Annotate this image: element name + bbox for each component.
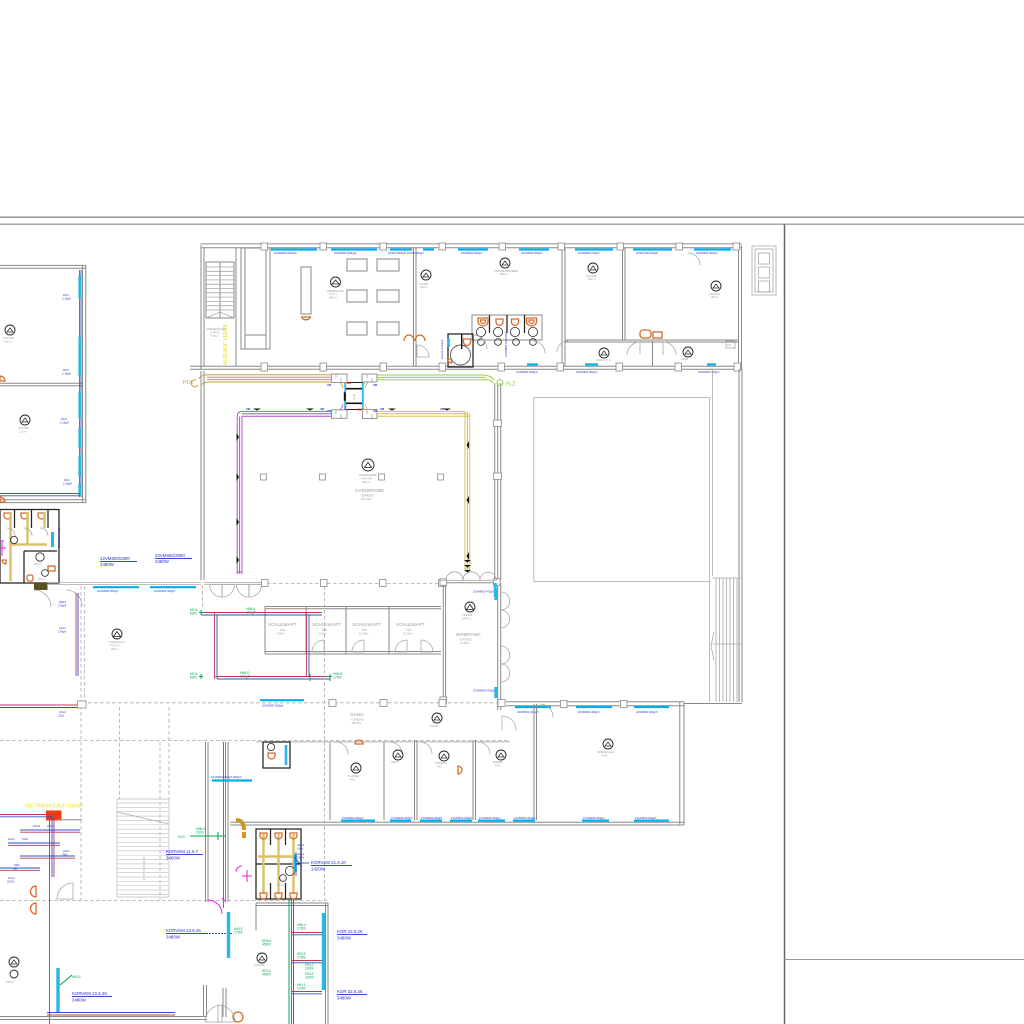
svg-text:3480W: 3480W xyxy=(337,936,352,941)
svg-text:3480W: 3480W xyxy=(155,559,170,564)
svg-text:DKU: DKU xyxy=(63,293,69,297)
svg-text:809 m: 809 m xyxy=(500,272,508,276)
svg-text:HKL1: HKL1 xyxy=(59,626,66,630)
svg-text:22/VM600-300g/h 300g/h: 22/VM600-300g/h 300g/h xyxy=(211,775,242,779)
svg-text:20 ST 17.65/30.00: 20 ST 17.65/30.00 xyxy=(142,857,146,880)
svg-text:21.65m: 21.65m xyxy=(460,641,470,645)
svg-text:P11: P11 xyxy=(437,764,442,768)
svg-text:21/VM600-300g/h: 21/VM600-300g/h xyxy=(421,816,443,820)
svg-text:KLASSE: KLASSE xyxy=(254,963,265,967)
svg-text:22/VM600-400g/h: 22/VM600-400g/h xyxy=(696,251,718,255)
svg-text:176%: 176% xyxy=(297,926,306,930)
svg-text:202 m: 202 m xyxy=(588,277,596,281)
svg-text:DKU: DKU xyxy=(64,478,70,482)
svg-text:3480W: 3480W xyxy=(337,996,352,1001)
svg-text:HKL5: HKL5 xyxy=(72,975,81,979)
svg-text:456%: 456% xyxy=(262,972,271,976)
svg-text:103 m: 103 m xyxy=(420,285,428,289)
svg-text:190d: 190d xyxy=(297,846,303,850)
svg-text:SRA: SRA xyxy=(14,863,20,867)
svg-text:21/VM600-300g/h: 21/VM600-300g/h xyxy=(342,816,364,820)
svg-text:22/VM600-300g/h: 22/VM600-300g/h xyxy=(521,251,543,255)
svg-text:HKL1: HKL1 xyxy=(8,837,15,841)
svg-text:3480W: 3480W xyxy=(72,998,87,1003)
svg-text:GANG 77 m: GANG 77 m xyxy=(596,358,612,362)
svg-text:22161: 22161 xyxy=(7,879,15,883)
svg-text:22VM600/2800: 22VM600/2800 xyxy=(155,553,185,558)
svg-text:22/VM600 300kg/h: 22/VM600 300kg/h xyxy=(334,251,357,255)
svg-text:FLZ: FLZ xyxy=(506,382,516,388)
svg-text:HML4: HML4 xyxy=(297,852,305,856)
svg-text:KORVKM 22.6.26: KORVKM 22.6.26 xyxy=(166,928,201,933)
svg-text:21/VM600-300g/h: 21/VM600-300g/h xyxy=(451,816,473,820)
svg-text:2.16g/h: 2.16g/h xyxy=(62,296,71,300)
svg-text:78%: 78% xyxy=(62,852,68,856)
svg-text:22/VM600-470g/h: 22/VM600-470g/h xyxy=(473,689,495,693)
svg-text:P10: P10 xyxy=(350,777,355,781)
svg-text:AUSLAUF VENTIL: AUSLAUF VENTIL xyxy=(223,323,229,365)
svg-text:HML4: HML4 xyxy=(297,843,305,847)
svg-text:21/VM600-300g/h: 21/VM600-300g/h xyxy=(479,816,501,820)
svg-text:456%: 456% xyxy=(262,942,271,946)
svg-text:WC H: WC H xyxy=(38,577,45,581)
svg-text:WINDFANG: WINDFANG xyxy=(456,632,481,637)
svg-text:22/VM600-470g/h: 22/VM600-470g/h xyxy=(578,251,600,255)
svg-text:22/VM600-300g/h: 22/VM600-300g/h xyxy=(576,370,598,374)
svg-text:10.30m: 10.30m xyxy=(359,632,369,636)
svg-text:22/VM600 300g/h: 22/VM600 300g/h xyxy=(154,589,176,593)
svg-text:WC D: WC D xyxy=(34,562,41,566)
svg-text:190g/h: 190g/h xyxy=(246,611,256,615)
svg-text:22/VM600-400g/h: 22/VM600-400g/h xyxy=(517,710,539,714)
svg-text:22/VM600 300kg/h: 22/VM600 300kg/h xyxy=(274,251,297,255)
svg-text:P14: P14 xyxy=(602,753,607,757)
svg-text:WC03: WC03 xyxy=(6,980,14,984)
svg-text:ARZT: ARZT xyxy=(391,760,399,764)
svg-text:2.16g/h: 2.16g/h xyxy=(63,481,72,485)
svg-text:SCHULWART: SCHULWART xyxy=(268,622,297,627)
svg-text:176%: 176% xyxy=(297,986,306,990)
svg-text:225.43m: 225.43m xyxy=(361,497,373,501)
svg-text:38.14m: 38.14m xyxy=(352,721,362,725)
svg-text:176g/h: 176g/h xyxy=(58,603,67,607)
svg-text:22/VM600-400g/h: 22/VM600-400g/h xyxy=(578,710,600,714)
svg-text:KORVKM 22.6.26: KORVKM 22.6.26 xyxy=(72,991,107,996)
svg-text:176%: 176% xyxy=(234,930,243,934)
svg-text:SCHULWART: SCHULWART xyxy=(312,622,341,627)
svg-text:202 m: 202 m xyxy=(362,480,370,484)
svg-text:SCHULWART: SCHULWART xyxy=(352,622,381,627)
svg-text:22/VM600-400g/h: 22/VM600-400g/h xyxy=(636,710,658,714)
svg-text:Ban: Ban xyxy=(13,866,18,870)
svg-text:22/VM600 300g/h: 22/VM600 300g/h xyxy=(57,526,61,548)
svg-text:668 m: 668 m xyxy=(329,295,337,299)
svg-text:22/VM600-300g/h: 22/VM600-300g/h xyxy=(516,370,538,374)
svg-text:HKL2: HKL2 xyxy=(59,710,66,714)
svg-text:HML5: HML5 xyxy=(59,600,67,604)
svg-text:+2.28: +2.28 xyxy=(352,393,356,401)
svg-text:58%: 58% xyxy=(190,676,197,680)
svg-text:2161: 2161 xyxy=(22,837,28,841)
svg-text:202 m: 202 m xyxy=(111,647,119,651)
svg-text:176%: 176% xyxy=(333,676,342,680)
svg-text:22/VM 600-400g/h: 22/VM 600-400g/h xyxy=(636,251,659,255)
svg-text:176%: 176% xyxy=(297,955,306,959)
svg-text:22VM600/2800: 22VM600/2800 xyxy=(100,556,130,561)
svg-text:21/VM600-300g/h: 21/VM600-300g/h xyxy=(583,816,605,820)
svg-text:2.16g/h: 2.16g/h xyxy=(60,420,69,424)
svg-text:PH: PH xyxy=(727,343,731,347)
svg-text:HKL1: HKL1 xyxy=(8,876,15,880)
svg-text:190%: 190% xyxy=(297,855,304,859)
svg-text:2.16g/h: 2.16g/h xyxy=(62,371,71,375)
svg-text:KOR 22.6.26: KOR 22.6.26 xyxy=(337,989,363,994)
svg-text:22/VM600 22/VM300: 22/VM600 22/VM300 xyxy=(504,331,508,357)
svg-text:WC K: WC K xyxy=(277,883,284,887)
svg-text:P12: P12 xyxy=(495,763,500,767)
svg-text:190g/h: 190g/h xyxy=(240,675,250,679)
svg-text:22161: 22161 xyxy=(47,824,55,828)
svg-text:301 m: 301 m xyxy=(711,295,719,299)
svg-text:SCHULWART: SCHULWART xyxy=(396,622,425,627)
svg-text:KORVKM 11.6.7: KORVKM 11.6.7 xyxy=(166,849,199,854)
svg-text:VLN: VLN xyxy=(178,835,185,839)
svg-text:22/VM600-470g/h: 22/VM600-470g/h xyxy=(473,590,495,594)
svg-text:22/VM600 300g/h: 22/VM600 300g/h xyxy=(262,704,284,708)
svg-text:POL: POL xyxy=(183,380,194,386)
svg-text:22/VM600-300g/h: 22/VM600-300g/h xyxy=(698,370,720,374)
svg-text:GANG: GANG xyxy=(350,712,364,717)
svg-text:190%: 190% xyxy=(305,975,314,979)
svg-text:9.09m: 9.09m xyxy=(319,632,327,636)
svg-text:108 m: 108 m xyxy=(4,339,12,343)
svg-text:22/VM600-300g/h: 22/VM600-300g/h xyxy=(461,251,483,255)
svg-text:110 m: 110 m xyxy=(19,429,27,433)
svg-text:GARDEROBE: GARDEROBE xyxy=(355,488,384,493)
svg-text:GETRÄNKEAUTOMAT: GETRÄNKEAUTOMAT xyxy=(25,803,84,810)
svg-text:DKU1: DKU1 xyxy=(33,824,41,828)
svg-text:KOR 22.6.26: KOR 22.6.26 xyxy=(337,929,363,934)
svg-text:22/VM 300kg/h 22/VM-300g/h: 22/VM 300kg/h 22/VM-300g/h xyxy=(388,251,424,255)
svg-text:21/VM600-300g/h: 21/VM600-300g/h xyxy=(391,816,413,820)
svg-text:2161: 2161 xyxy=(58,713,64,717)
svg-text:GANG: GANG xyxy=(430,724,438,728)
svg-text:DKU: DKU xyxy=(63,368,69,372)
svg-text:DKU: DKU xyxy=(61,417,67,421)
svg-text:HKL1: HKL1 xyxy=(63,849,70,853)
svg-text:FLUR: FLUR xyxy=(681,357,688,361)
svg-text:KORVKM 21.9.10: KORVKM 21.9.10 xyxy=(311,860,346,865)
svg-text:7.76m: 7.76m xyxy=(210,334,218,338)
svg-text:3460W: 3460W xyxy=(166,856,181,861)
svg-text:12.06m: 12.06m xyxy=(403,632,413,636)
svg-text:190d: 190d xyxy=(196,830,204,834)
svg-text:3480W: 3480W xyxy=(166,935,181,940)
svg-text:WFG 2: WFG 2 xyxy=(462,616,471,620)
svg-text:58%: 58% xyxy=(190,612,197,616)
svg-text:Anschl Vorwand: Anschl Vorwand xyxy=(440,339,444,359)
svg-text:21/VM600-300g/h: 21/VM600-300g/h xyxy=(635,816,657,820)
svg-text:21/VM600-300g/h: 21/VM600-300g/h xyxy=(514,816,536,820)
svg-text:1420W: 1420W xyxy=(311,867,326,872)
svg-text:190%: 190% xyxy=(305,966,314,970)
svg-text:3480W: 3480W xyxy=(100,562,115,567)
svg-text:22/VM600 300g/h: 22/VM600 300g/h xyxy=(97,589,119,593)
svg-text:9.09m: 9.09m xyxy=(277,632,285,636)
svg-text:176g/h: 176g/h xyxy=(58,629,67,633)
